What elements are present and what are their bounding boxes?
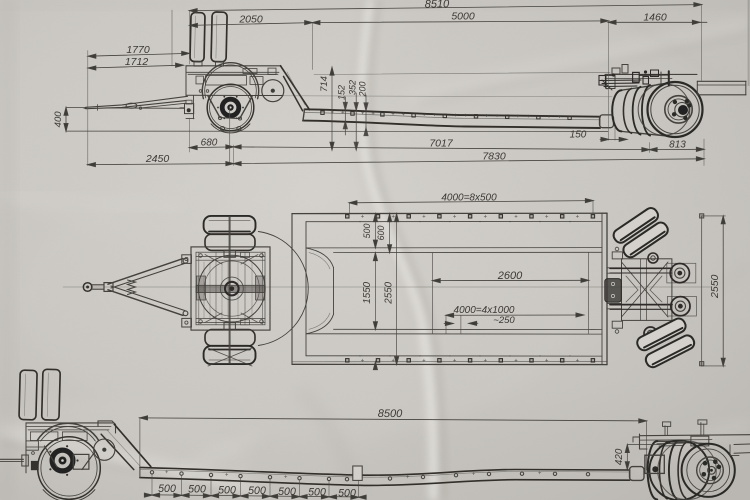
- svg-text:500: 500: [278, 486, 296, 498]
- svg-text:400: 400: [53, 111, 64, 128]
- svg-text:150: 150: [570, 130, 587, 141]
- svg-text:680: 680: [201, 137, 218, 148]
- svg-text:~250: ~250: [493, 315, 515, 326]
- svg-text:500: 500: [338, 487, 356, 499]
- svg-text:2600: 2600: [497, 270, 523, 282]
- svg-text:1460: 1460: [643, 12, 667, 24]
- svg-text:1770: 1770: [126, 44, 150, 56]
- svg-text:500: 500: [308, 487, 326, 499]
- svg-text:420: 420: [614, 448, 625, 465]
- svg-text:714: 714: [319, 76, 330, 92]
- svg-text:200: 200: [357, 81, 367, 97]
- svg-text:500: 500: [362, 224, 372, 239]
- svg-text:1712: 1712: [125, 56, 149, 68]
- svg-text:7830: 7830: [482, 150, 506, 162]
- svg-text:500: 500: [158, 483, 176, 495]
- svg-text:8510: 8510: [425, 0, 451, 11]
- svg-text:2050: 2050: [238, 13, 263, 25]
- svg-text:500: 500: [218, 484, 236, 496]
- svg-text:8500: 8500: [378, 408, 403, 420]
- svg-text:5000: 5000: [451, 11, 475, 23]
- svg-text:4000=8x500: 4000=8x500: [441, 192, 497, 203]
- svg-text:500: 500: [188, 484, 206, 496]
- svg-text:600: 600: [376, 226, 386, 241]
- svg-text:2550: 2550: [384, 281, 395, 304]
- svg-text:500: 500: [248, 485, 266, 497]
- svg-text:2450: 2450: [145, 153, 170, 165]
- svg-text:7017: 7017: [429, 138, 454, 150]
- svg-text:352: 352: [348, 80, 358, 95]
- svg-text:813: 813: [669, 139, 686, 150]
- svg-text:2550: 2550: [709, 274, 721, 299]
- svg-text:1550: 1550: [362, 281, 373, 303]
- svg-text:152: 152: [337, 85, 347, 100]
